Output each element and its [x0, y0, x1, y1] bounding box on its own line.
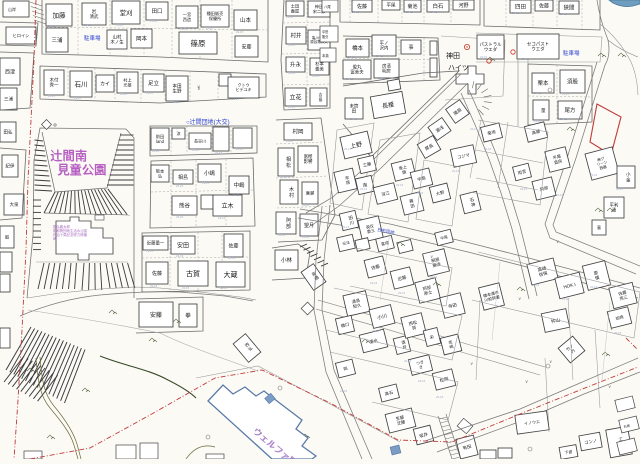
svg-text:小林: 小林 [281, 256, 293, 264]
svg-text:23-15: 23-15 [352, 10, 360, 14]
svg-text:佐藤: 佐藤 [228, 242, 238, 249]
svg-text:辻間南: 辻間南 [51, 149, 88, 164]
svg-text:ウエダ: ウエダ [531, 46, 545, 53]
svg-text:23-15: 23-15 [522, 57, 530, 61]
svg-text:量: 量 [541, 107, 546, 114]
svg-text:23-15: 23-15 [152, 149, 160, 153]
svg-text:23-15: 23-15 [342, 225, 350, 229]
svg-text:23-15: 23-15 [176, 254, 184, 258]
svg-text:23-15: 23-15 [286, 139, 294, 143]
svg-text:23-15: 23-15 [562, 297, 570, 301]
svg-text:23-15: 23-15 [236, 30, 244, 34]
svg-text:富美夫: 富美夫 [350, 69, 364, 76]
svg-text:販殳: 販殳 [322, 34, 329, 39]
svg-text:長谷川: 長谷川 [194, 138, 206, 144]
svg-text:見童公園: 見童公園 [58, 163, 107, 178]
svg-text:23-15: 23-15 [348, 55, 356, 59]
svg-text:23-15: 23-15 [150, 19, 158, 23]
svg-text:三浦: 三浦 [4, 96, 13, 103]
svg-text:23-15: 23-15 [346, 77, 354, 81]
svg-text:升永: 升永 [290, 61, 302, 69]
svg-text:保優所: 保優所 [209, 15, 222, 22]
svg-text:岡本: 岡本 [136, 35, 148, 43]
svg-text:秀一: 秀一 [50, 82, 59, 89]
svg-text:安田: 安田 [177, 241, 189, 249]
svg-text:望月: 望月 [304, 222, 314, 229]
svg-text:利治十周記念修力修繕: 利治十周記念修力修繕 [53, 232, 88, 237]
svg-text:ヒデユキ: ヒデユキ [236, 86, 252, 92]
svg-text:金: 金 [626, 177, 631, 183]
svg-text:駐車場: 駐車場 [563, 49, 580, 57]
svg-text:狭間: 狭間 [563, 4, 575, 12]
svg-text:23-15: 23-15 [418, 379, 426, 383]
svg-text:西津: 西津 [5, 68, 15, 75]
svg-text:23-15: 23-15 [360, 187, 368, 191]
svg-text:23-15: 23-15 [280, 175, 288, 179]
svg-text:23-15: 23-15 [236, 147, 244, 151]
svg-text:23-15: 23-15 [532, 283, 540, 287]
svg-text:23-15: 23-15 [452, 169, 460, 173]
svg-text:23-15: 23-15 [480, 55, 488, 59]
svg-text:23-15: 23-15 [378, 76, 386, 80]
svg-text:安藤: 安藤 [241, 43, 251, 50]
svg-text:23-15: 23-15 [288, 105, 296, 109]
svg-text:23-15: 23-15 [372, 329, 380, 333]
svg-text:23-15: 23-15 [176, 184, 184, 188]
svg-text:清武: 清武 [90, 13, 99, 20]
svg-text:田口: 田口 [151, 8, 162, 15]
svg-text:河野: 河野 [458, 2, 468, 9]
svg-text:23-15: 23-15 [416, 191, 424, 195]
svg-text:栗本: 栗本 [537, 79, 549, 87]
svg-text:光雄: 光雄 [123, 81, 131, 88]
svg-text:神田: 神田 [446, 51, 460, 60]
svg-text:ウエダ: ウエダ [484, 46, 498, 53]
svg-text:白石: 白石 [432, 2, 444, 10]
svg-text:23-15: 23-15 [562, 92, 570, 96]
svg-text:明房: 明房 [382, 68, 391, 75]
svg-text:カイ: カイ [100, 81, 110, 87]
svg-text:橋本: 橋本 [352, 44, 364, 52]
svg-text:大蔵: 大蔵 [224, 270, 238, 279]
svg-text:23-15: 23-15 [48, 24, 56, 28]
svg-text:23-15: 23-15 [512, 11, 520, 15]
svg-text:23-15: 23-15 [406, 10, 414, 14]
svg-text:23-15: 23-15 [344, 147, 352, 151]
svg-text:23-15: 23-15 [614, 331, 622, 335]
svg-text:西造: 西造 [183, 16, 192, 23]
svg-text:生野: 生野 [173, 88, 182, 95]
svg-text:○辻間団地(大交): ○辻間団地(大交) [186, 118, 230, 126]
svg-text:村井: 村井 [290, 32, 302, 40]
svg-text:23-15: 23-15 [302, 235, 310, 239]
svg-text:23-15: 23-15 [430, 10, 438, 14]
svg-text:小嶋: 小嶋 [204, 169, 216, 177]
svg-text:大泉: 大泉 [10, 201, 19, 208]
svg-text:中田: 中田 [322, 29, 328, 34]
svg-text:23-15: 23-15 [218, 216, 226, 220]
svg-text:加藤: 加藤 [53, 10, 67, 19]
svg-text:蝦: 蝦 [5, 234, 9, 240]
svg-text:古賀: 古賀 [186, 269, 200, 278]
svg-text:山本: 山本 [240, 16, 252, 24]
svg-text:近藤量一: 近藤量一 [147, 240, 165, 247]
svg-text:23-15: 23-15 [182, 286, 190, 290]
svg-text:23-15: 23-15 [470, 127, 478, 131]
svg-text:立木: 立木 [221, 202, 233, 210]
svg-text:23-15: 23-15 [215, 151, 223, 155]
svg-text:23-15: 23-15 [232, 193, 240, 197]
svg-text:23-15: 23-15 [398, 291, 406, 295]
svg-text:23-15: 23-15 [278, 233, 286, 237]
svg-text:23-15: 23-15 [146, 249, 154, 253]
svg-text:23-15: 23-15 [206, 26, 214, 30]
svg-text:憲: 憲 [597, 224, 601, 230]
svg-text:相島: 相島 [178, 174, 188, 181]
svg-text:23-15: 23-15 [556, 193, 564, 197]
svg-text:佐藤: 佐藤 [539, 2, 549, 9]
svg-text:23-15: 23-15 [150, 284, 158, 288]
svg-text:足立: 足立 [148, 79, 160, 87]
svg-text:23-15: 23-15 [228, 256, 236, 260]
svg-text:弘: 弘 [158, 172, 162, 179]
svg-text:島: 島 [319, 96, 323, 102]
svg-text:23-15: 23-15 [590, 285, 598, 289]
svg-text:須股: 須股 [567, 78, 579, 86]
svg-text:23-15: 23-15 [436, 395, 444, 399]
svg-text:23-15: 23-15 [288, 71, 296, 75]
svg-text:事: 事 [408, 44, 413, 51]
svg-text:村岡: 村岡 [292, 128, 304, 136]
svg-text:23-15: 23-15 [560, 12, 568, 16]
svg-text:23-15: 23-15 [84, 23, 92, 27]
svg-text:ヒロイシ: ヒロイシ [13, 33, 30, 38]
svg-text:篠原: 篠原 [191, 38, 206, 48]
svg-text:拳: 拳 [185, 312, 191, 320]
svg-text:23-15: 23-15 [404, 359, 412, 363]
svg-text:23-15: 23-15 [288, 43, 296, 47]
svg-text:23-15: 23-15 [120, 92, 128, 96]
svg-text:23-15: 23-15 [232, 97, 240, 101]
svg-text:23-15: 23-15 [286, 15, 294, 19]
svg-text:23-15: 23-15 [74, 96, 82, 100]
svg-text:23-15: 23-15 [430, 275, 438, 279]
svg-text:三浦: 三浦 [51, 36, 63, 44]
svg-text:23-15: 23-15 [370, 281, 378, 285]
svg-text:部: 部 [286, 223, 291, 230]
svg-text:尾方: 尾方 [564, 106, 576, 114]
svg-text:23-15: 23-15 [48, 94, 56, 98]
svg-text:涼: 涼 [177, 130, 181, 136]
svg-text:中嶋: 中嶋 [233, 181, 245, 189]
svg-text:沢内: 沢内 [380, 45, 389, 52]
svg-text:村: 村 [289, 192, 294, 199]
svg-text:廣瀬: 廣瀬 [306, 190, 315, 197]
svg-text:23-15: 23-15 [484, 147, 492, 151]
svg-text:松: 松 [286, 162, 291, 169]
svg-text:木ノ生: 木ノ生 [110, 39, 124, 46]
svg-text:23-15: 23-15 [202, 181, 210, 185]
svg-text:山岸: 山岸 [8, 6, 16, 12]
svg-text:23-15: 23-15 [146, 91, 154, 95]
svg-text:四田: 四田 [515, 4, 526, 11]
svg-text:23-15: 23-15 [376, 54, 384, 58]
svg-text:23-15: 23-15 [172, 100, 180, 104]
svg-text:23-15: 23-15 [560, 117, 568, 121]
svg-text:堂刈: 堂刈 [120, 8, 133, 17]
svg-text:23-15: 23-15 [396, 183, 404, 187]
svg-text:佐藤: 佐藤 [357, 3, 367, 10]
svg-text:義美: 義美 [315, 66, 324, 73]
svg-text:安藤: 安藤 [150, 311, 162, 319]
svg-text:影響: 影響 [304, 158, 313, 165]
svg-text:本英: 本英 [322, 53, 329, 58]
svg-text:駐車場: 駐車場 [84, 34, 101, 42]
svg-text:八尾: 八尾 [324, 5, 331, 9]
svg-text:紀伊: 紀伊 [6, 163, 15, 170]
svg-text:菊池: 菊池 [407, 3, 417, 10]
svg-text:land: land [156, 139, 165, 144]
svg-text:石川: 石川 [75, 80, 88, 88]
svg-text:23-15: 23-15 [220, 286, 228, 290]
svg-text:23-15: 23-15 [302, 203, 310, 207]
svg-text:23-15: 23-15 [176, 215, 184, 219]
svg-text:立花: 立花 [289, 93, 301, 101]
svg-text:佐藤: 佐藤 [152, 270, 162, 277]
svg-text:23-15: 23-15 [340, 389, 348, 393]
svg-text:23-15: 23-15 [312, 74, 320, 78]
svg-text:23-15: 23-15 [192, 148, 200, 152]
svg-text:湧: 湧 [612, 207, 617, 214]
svg-text:義屋: 義屋 [291, 7, 299, 14]
svg-text:23-15: 23-15 [180, 27, 188, 31]
svg-text:23-15: 23-15 [116, 23, 124, 27]
svg-text:23-15: 23-15 [590, 173, 598, 177]
svg-text:熊谷: 熊谷 [179, 202, 191, 210]
svg-text:23-15: 23-15 [534, 91, 542, 95]
svg-text:23-15: 23-15 [350, 117, 358, 121]
svg-text:田弘: 田弘 [4, 129, 13, 136]
svg-text:23-15: 23-15 [520, 187, 528, 191]
svg-text:23-15: 23-15 [616, 187, 624, 191]
